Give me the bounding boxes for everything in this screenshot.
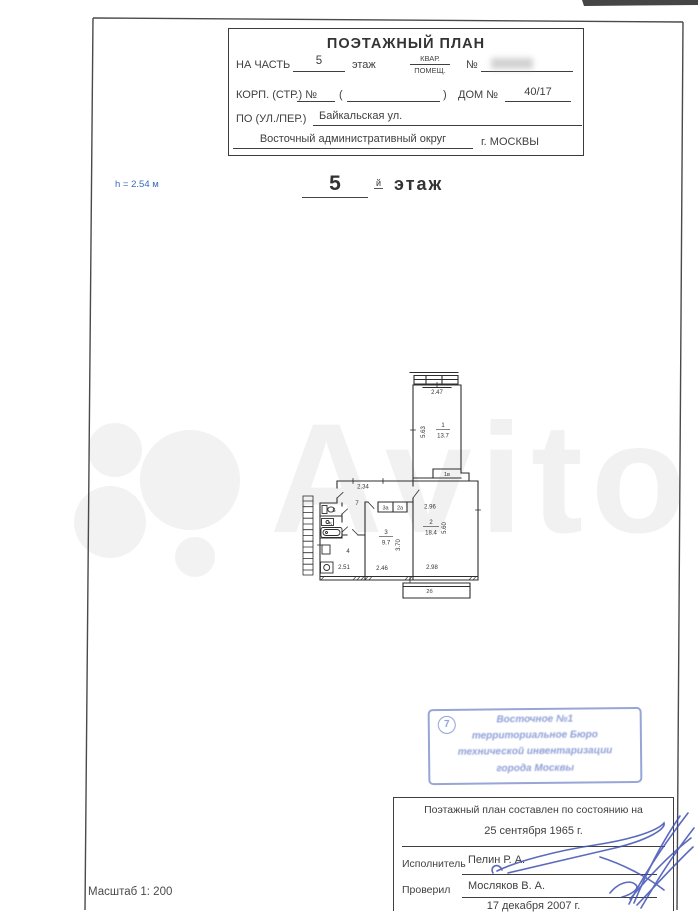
kitchen-width-label: 2.51 <box>338 565 350 571</box>
document-title: ПОЭТАЖНЫЙ ПЛАН <box>229 36 583 52</box>
bathtub-icon <box>321 528 342 538</box>
balcony-label: 2б <box>426 589 432 595</box>
room2-area-label: 18.4 <box>425 531 437 537</box>
closet-1v-label: 1в <box>444 472 450 478</box>
street-value: Байкальская ул. <box>313 110 582 126</box>
balcony-outline <box>403 583 470 598</box>
na-chast-label: НА ЧАСТЬ <box>236 59 290 71</box>
room3-number-label: 3 <box>384 530 388 536</box>
survey-date-line <box>402 831 665 847</box>
sink-icon <box>321 562 334 573</box>
apartment-number-line <box>481 56 573 72</box>
floor-plan: 2.47 5.63 1 13.7 1в 2.34 7 3а 2а 2.96 2 … <box>290 360 498 605</box>
stamp-line-1: Восточное №1 <box>416 713 654 726</box>
executor-line <box>462 859 657 875</box>
bath-number-label: 5 <box>329 522 332 528</box>
dom-value: 40/17 <box>505 86 571 102</box>
floor-number: 5 <box>302 172 368 198</box>
scale-note: Масштаб 1: 200 <box>88 886 172 898</box>
kvar-pomesh-label: КВАР. ПОМЕЩ. <box>410 54 450 75</box>
floor-part-value: 5 <box>293 55 345 72</box>
floor-word: этаж <box>394 174 443 195</box>
header-form: ПОЭТАЖНЫЙ ПЛАН НА ЧАСТЬ 5 этаж КВАР. ПОМ… <box>228 28 584 156</box>
room1-area-label: 13.7 <box>437 434 449 440</box>
hall-number-label: 7 <box>355 501 359 507</box>
stamp-line-4: города Москвы <box>416 762 654 775</box>
room3-width-label: 2.46 <box>376 566 388 572</box>
room2-depth-label: 5.60 <box>442 522 448 534</box>
closet-2a-label: 2а <box>397 506 404 512</box>
stove-icon <box>322 545 330 554</box>
executor-label: Исполнитель <box>402 858 466 870</box>
hall-width-label: 2.34 <box>357 485 369 491</box>
etazh-label: этаж <box>352 59 376 71</box>
korp-value-line <box>297 86 335 102</box>
room2-width-label: 2.96 <box>424 505 436 511</box>
plan-labels: 2.47 5.63 1 13.7 1в 2.34 7 3а 2а 2.96 2 … <box>329 390 450 595</box>
stroenie-value-line <box>347 86 440 102</box>
toilet-icon <box>322 506 327 514</box>
scan-edge-artifact <box>582 0 698 6</box>
bti-stamp: 7 Восточное №1 территориальное Бюро техн… <box>428 707 643 785</box>
checker-line <box>462 882 657 898</box>
watermark-logo <box>55 400 295 580</box>
apartment-number-redacted <box>491 58 533 69</box>
wc-number-label: 6 <box>332 508 335 514</box>
room3-area-label: 9.7 <box>382 541 391 547</box>
checker-label: Проверил <box>402 884 450 896</box>
room1-width-label: 2.47 <box>431 390 443 396</box>
room2-number-label: 2 <box>429 520 433 526</box>
room1-number-label: 1 <box>441 423 445 429</box>
staircase <box>303 496 313 575</box>
room3-depth-label: 3.70 <box>396 539 402 551</box>
ceiling-height-note: h = 2.54 м <box>115 179 159 190</box>
kvar-label: КВАР. <box>410 54 450 65</box>
room2-width-bottom-label: 2.98 <box>426 565 438 571</box>
footer-title: Поэтажный план составлен по состоянию на <box>394 804 673 816</box>
footer-table: Поэтажный план составлен по состоянию на… <box>393 797 674 911</box>
dom-label: ДОМ № <box>458 89 498 101</box>
closet-3a-label: 3а <box>382 506 389 512</box>
district-value: Восточный административный округ <box>233 133 473 149</box>
issue-date: 17 декабря 2007 г. <box>394 900 673 912</box>
paren-close: ) <box>443 89 447 101</box>
city-value: г. МОСКВЫ <box>481 136 539 148</box>
apartment-number-label: № <box>466 59 478 71</box>
pomesh-label: ПОМЕЩ. <box>410 65 450 75</box>
floor-number-suffix: й <box>374 178 383 189</box>
street-label: ПО (УЛ./ПЕР.) <box>236 113 306 125</box>
room1-depth-label: 5.63 <box>421 426 427 438</box>
stamp-line-2: территориальное Бюро <box>416 729 654 742</box>
kitchen-number-label: 4 <box>346 549 350 555</box>
stamp-line-3: технической инвентаризации <box>416 745 654 758</box>
paren-open: ( <box>339 89 343 101</box>
